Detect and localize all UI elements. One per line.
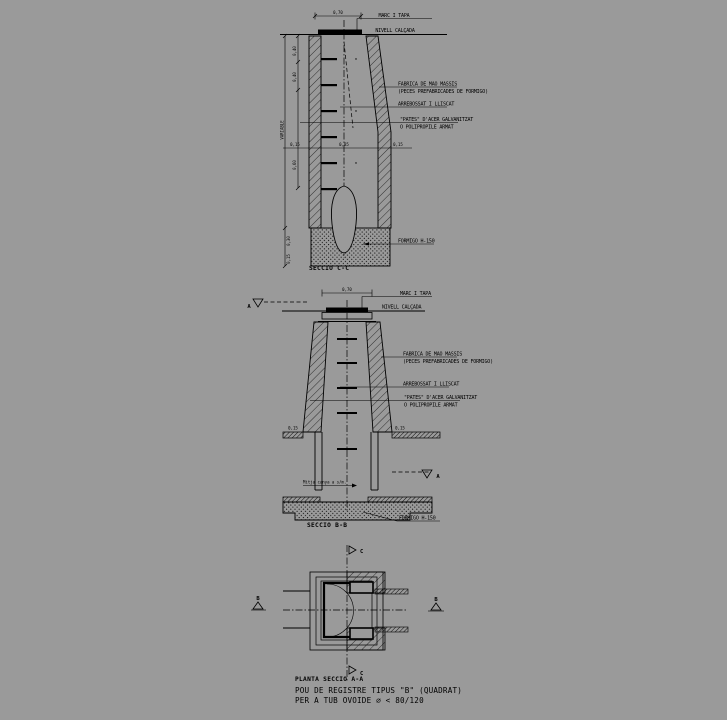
nivell-calcada-label: NIVELL CALÇADA (375, 28, 415, 34)
drawing-background (0, 0, 727, 720)
nivell-calcada-label-bb: NIVELL CALÇADA (382, 305, 422, 311)
aa-title: PLANTA SECCIO A-A (295, 676, 363, 683)
cc-dim-d2: 0,40 (292, 72, 297, 82)
cc-dim-wall-left: 0,15 (290, 142, 300, 147)
formigo-label: FORMIGO H-150 (398, 239, 435, 245)
cc-title: SECCIO C-C (309, 265, 349, 272)
marc-tapa-label: MARC I TAPA (379, 13, 410, 19)
pates-label-1: "PATES" D'ACER GALVANITZAT (400, 117, 473, 123)
arrebossat-label-bb: ARREBOSSAT I LLISCAT (403, 382, 459, 388)
fabrica-label-1-bb: FABRICA DE MAO MASSIS (403, 352, 462, 358)
fabrica-label-2: (PECES PREFABRICADES DE FORMIGO) (398, 89, 488, 95)
cc-dim-wall-right: 0,15 (393, 142, 403, 147)
cc-dim-d4: 0,60 (292, 160, 297, 170)
formigo-label-bb: FORMIGO H-150 (399, 516, 436, 522)
cc-dim-d3: VARIABLE (280, 120, 285, 140)
pates-label-2-bb: O POLIPROPILE ARMAT (404, 403, 458, 409)
fabrica-label-1: FABRICA DE MAO MASSIS (398, 82, 457, 88)
caption-line-2: PER A TUB OVOIDE ⌀ < 80/120 (295, 696, 424, 705)
cc-wall-left (309, 36, 321, 228)
arrebossat-label: ARREBOSSAT I LLISCAT (398, 102, 454, 108)
fabrica-label-2-bb: (PECES PREFABRICADES DE FORMIGO) (403, 359, 493, 365)
marc-tapa-label-bb: MARC I TAPA (400, 291, 431, 297)
bb-dim-left: 0,15 (288, 426, 298, 431)
cad-drawing-manhole: 0,70 MARC I TAPA NIVELL CALÇADA (0, 0, 727, 720)
marker-c-top-label: C (360, 549, 363, 555)
bb-title: SECCIO B-B (307, 522, 347, 529)
caption-line-1: POU DE REGISTRE TIPUS "B" (QUADRAT) (295, 686, 462, 695)
aa-pipe-strip-bottom (375, 627, 408, 632)
cc-dim-d1: 0,40 (292, 46, 297, 56)
cc-dim-inner: 0,85 (339, 142, 349, 147)
bb-dim-right: 0,15 (395, 426, 405, 431)
aa-pipe-strip-top (375, 589, 408, 594)
bb-top-dim-label: 0,70 (342, 287, 352, 292)
mitja-canya-label: Mitja canya a s/m. (303, 480, 346, 485)
pates-label-1-bb: "PATES" D'ACER GALVANITZAT (404, 395, 477, 401)
cc-dim-d6: 0,15 (286, 254, 291, 264)
cc-dim-d5: 0,30 (286, 236, 291, 246)
cc-top-dim-label: 0,70 (333, 10, 343, 15)
pates-label-2: O POLIPROPILE ARMAT (400, 125, 454, 131)
cc-cover-cap (318, 30, 362, 35)
